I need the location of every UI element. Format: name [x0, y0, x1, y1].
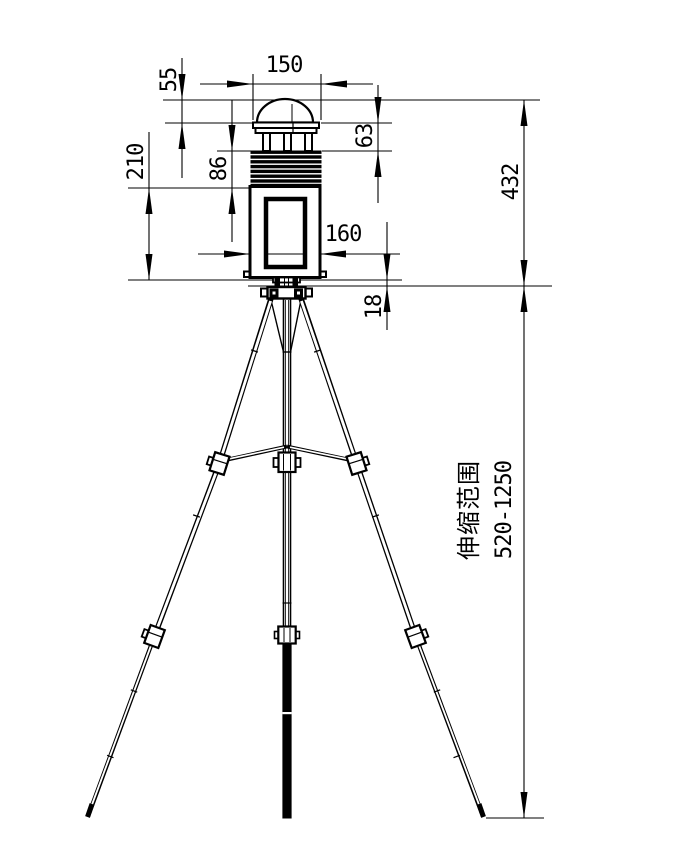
dim-label-18: 18	[362, 295, 387, 320]
weather-station-tripod-drawing: 150 160 55 210 86 63 18 432 伸缩范围 520-125…	[0, 0, 680, 864]
tripod-center-hub	[274, 453, 301, 473]
technical-drawing-canvas: 150 160 55 210 86 63 18 432 伸缩范围 520-125…	[0, 0, 680, 864]
station-panel	[266, 199, 305, 267]
column-clamp	[275, 627, 300, 644]
dim-label-210: 210	[124, 144, 149, 181]
cap-posts	[263, 133, 312, 151]
dim-label-150: 150	[266, 53, 303, 78]
dim-label-63: 63	[353, 124, 378, 149]
column-lower-section	[282, 644, 291, 819]
paper-background	[0, 0, 680, 864]
dim-label-520-1250: 520-1250	[492, 461, 517, 559]
dim-label-55: 55	[157, 68, 182, 93]
dim-label-432: 432	[499, 164, 524, 201]
cap-plate	[253, 123, 319, 134]
dim-label-160: 160	[325, 222, 362, 247]
dim-label-telescopic-range: 伸缩范围	[455, 460, 483, 560]
weather-station	[244, 99, 326, 278]
dim-label-86: 86	[207, 157, 232, 182]
